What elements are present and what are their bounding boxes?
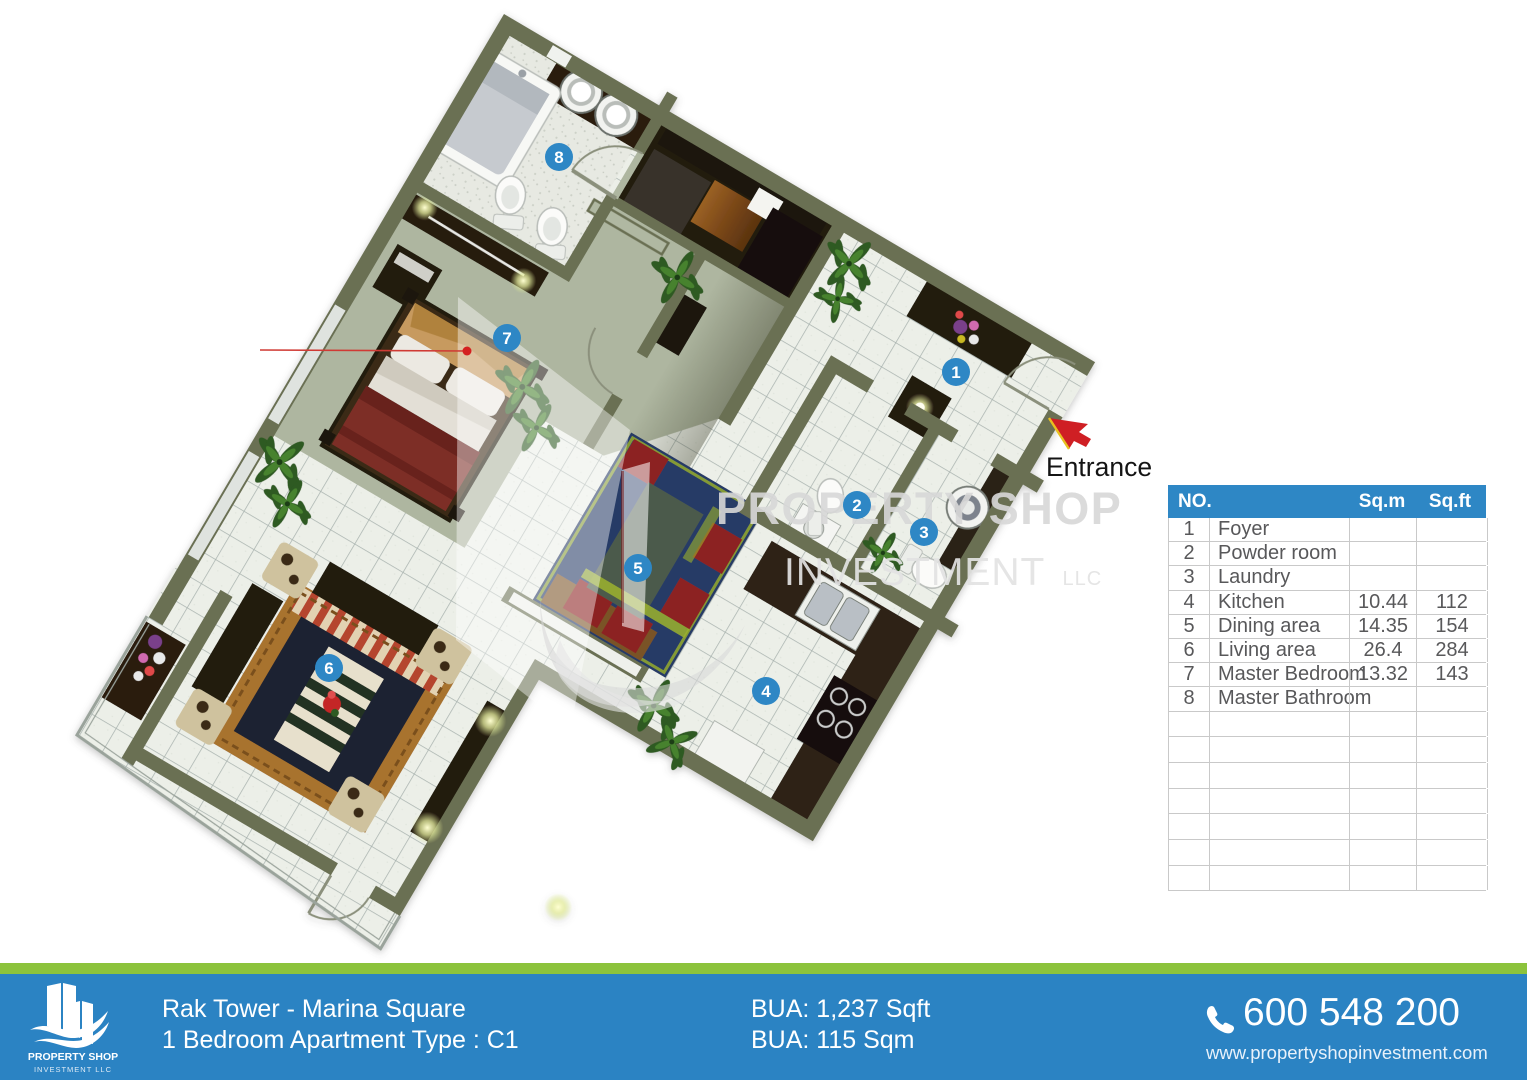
svg-text:Entrance: Entrance xyxy=(1046,452,1152,482)
svg-text:6: 6 xyxy=(324,659,333,678)
svg-text:2: 2 xyxy=(852,496,861,515)
svg-text:PROPERTY SHOP: PROPERTY SHOP xyxy=(28,1051,118,1063)
svg-text:4: 4 xyxy=(761,682,771,701)
svg-text:8: 8 xyxy=(554,148,563,167)
svg-text:1: 1 xyxy=(951,363,960,382)
svg-text:INVESTMENT LLC: INVESTMENT LLC xyxy=(784,551,1102,594)
svg-text:3: 3 xyxy=(919,523,928,542)
svg-text:INVESTMENT LLC: INVESTMENT LLC xyxy=(34,1065,112,1074)
svg-text:5: 5 xyxy=(633,559,642,578)
svg-text:7: 7 xyxy=(502,329,511,348)
